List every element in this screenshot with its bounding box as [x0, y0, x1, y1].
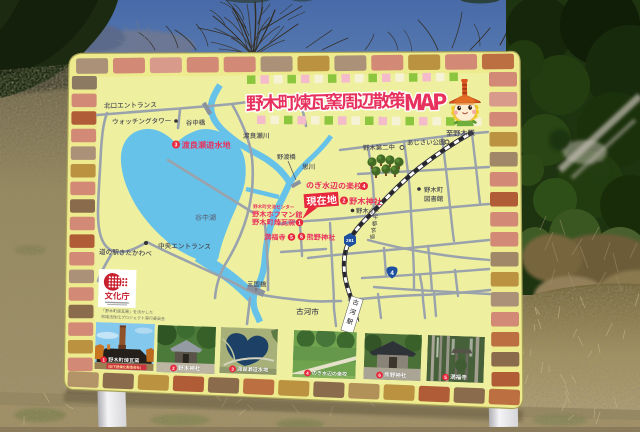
svg-text:1: 1	[298, 220, 301, 226]
svg-text:261: 261	[346, 238, 354, 243]
svg-text:3: 3	[175, 142, 178, 148]
svg-text:6: 6	[300, 234, 303, 240]
svg-text:2: 2	[343, 198, 346, 204]
svg-text:4: 4	[390, 270, 394, 277]
svg-text:4: 4	[363, 184, 366, 190]
svg-text:5: 5	[290, 235, 293, 241]
